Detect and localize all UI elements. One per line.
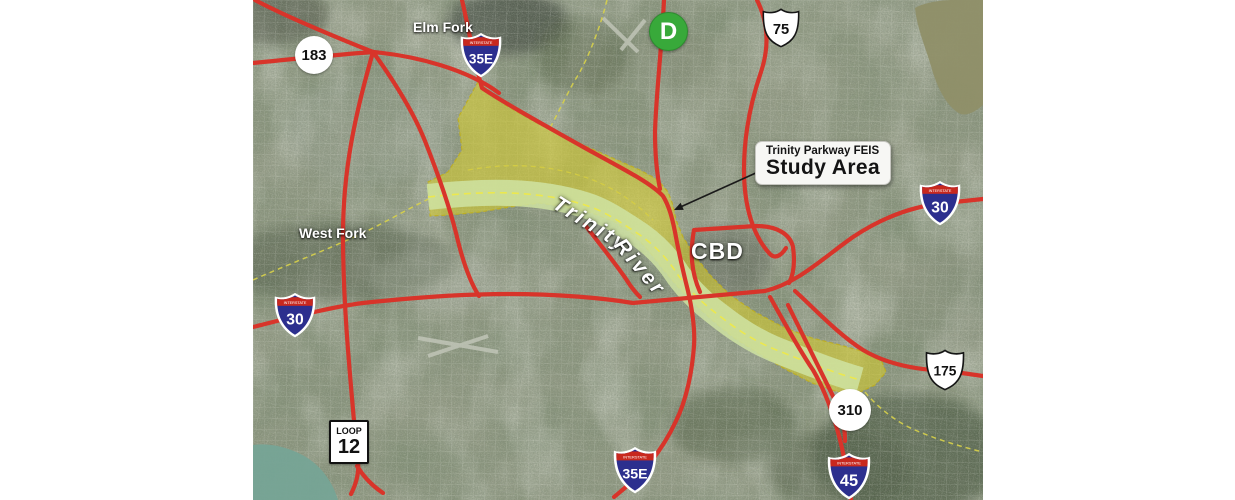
label-cbd: CBD xyxy=(691,238,744,265)
i30-east-number: 30 xyxy=(931,199,949,216)
satellite-map: Elm Fork West Fork CBD Trinity River Tri… xyxy=(253,0,983,500)
loop12-number: 12 xyxy=(338,437,360,457)
i45-number: 45 xyxy=(840,472,858,490)
i35e-south-banner: INTERSTATE xyxy=(623,455,647,460)
route-shield-i30-east: INTERSTATE 30 xyxy=(919,180,961,231)
i35e-north-banner: INTERSTATE xyxy=(470,41,493,45)
route-shield-i35e-north: INTERSTATE 35E xyxy=(460,32,502,83)
loop12-banner: LOOP xyxy=(336,427,362,436)
dallas-north-tollway-logo: D xyxy=(649,12,688,51)
route-shield-i30-west: INTERSTATE 30 xyxy=(274,292,316,343)
route-shield-us175: 175 xyxy=(923,348,967,397)
i30-east-banner: INTERSTATE xyxy=(929,189,952,193)
callout-line2: Study Area xyxy=(766,157,880,180)
study-area-callout: Trinity Parkway FEIS Study Area xyxy=(755,141,891,185)
route-shield-i45: INTERSTATE 45 xyxy=(827,452,871,500)
route-shield-loop12: LOOP 12 xyxy=(329,420,369,464)
i30-west-banner: INTERSTATE xyxy=(284,301,307,305)
us75-number: 75 xyxy=(773,22,789,38)
route-shield-i35e-south: INTERSTATE 35E xyxy=(613,446,657,499)
route-shield-sh310: 310 xyxy=(829,389,871,431)
i30-west-number: 30 xyxy=(286,311,304,328)
i35e-north-number: 35E xyxy=(469,51,493,66)
us175-number: 175 xyxy=(934,364,957,379)
dnt-letter: D xyxy=(660,18,677,46)
page: Elm Fork West Fork CBD Trinity River Tri… xyxy=(0,0,1235,500)
sh310-number: 310 xyxy=(837,402,862,419)
route-shield-us75: 75 xyxy=(760,7,802,54)
label-west-fork: West Fork xyxy=(299,225,366,241)
us183-number: 183 xyxy=(301,47,326,64)
route-shield-us183: 183 xyxy=(295,36,333,74)
i45-banner: INTERSTATE xyxy=(837,461,861,466)
i35e-south-number: 35E xyxy=(622,467,647,483)
